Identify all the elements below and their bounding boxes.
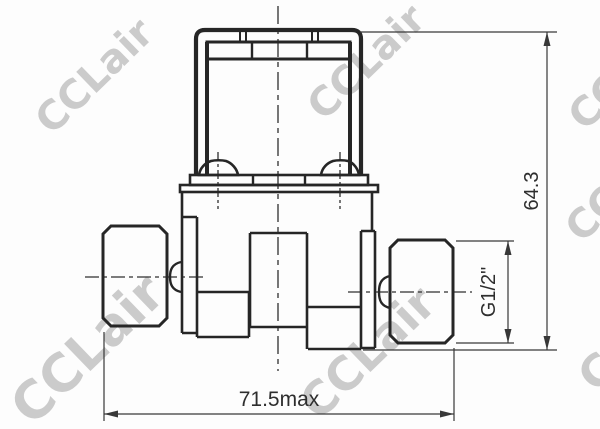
thread-dimension-label: G1/2" bbox=[478, 267, 500, 317]
watermark-text: CCLair bbox=[568, 254, 600, 401]
watermark-text: CCLair bbox=[0, 263, 177, 429]
arrowhead-top bbox=[544, 32, 551, 46]
watermark-text: CCLair bbox=[560, 6, 600, 140]
arrowhead-top bbox=[505, 241, 512, 255]
watermark-text: CCLair bbox=[299, 0, 435, 129]
coil-band-dividers bbox=[252, 42, 307, 59]
arrowhead-left bbox=[104, 411, 118, 418]
valve-drawing-svg: CCLair CCLair CCLair CCLair CCLair CCLai… bbox=[0, 0, 600, 429]
watermark-layer: CCLair CCLair CCLair CCLair CCLair CCLai… bbox=[0, 0, 600, 429]
body-outline-left bbox=[182, 192, 250, 337]
technical-drawing-page: CCLair CCLair CCLair CCLair CCLair CCLai… bbox=[0, 0, 600, 429]
height-dimension-label: 64.3 bbox=[521, 172, 543, 211]
arrowhead-right bbox=[440, 411, 454, 418]
width-dimension-label: 71.5max bbox=[239, 388, 320, 411]
watermark-text: CCLair bbox=[27, 10, 163, 144]
flange-lower-strip bbox=[180, 185, 378, 192]
watermark-text: CCLair bbox=[557, 118, 600, 252]
coil-top-tabs bbox=[240, 31, 318, 42]
flange-strip-dividers bbox=[253, 175, 305, 185]
arrowhead-bottom bbox=[505, 329, 512, 343]
arrowhead-bottom bbox=[544, 336, 551, 350]
flange-upper-strip bbox=[190, 175, 368, 185]
